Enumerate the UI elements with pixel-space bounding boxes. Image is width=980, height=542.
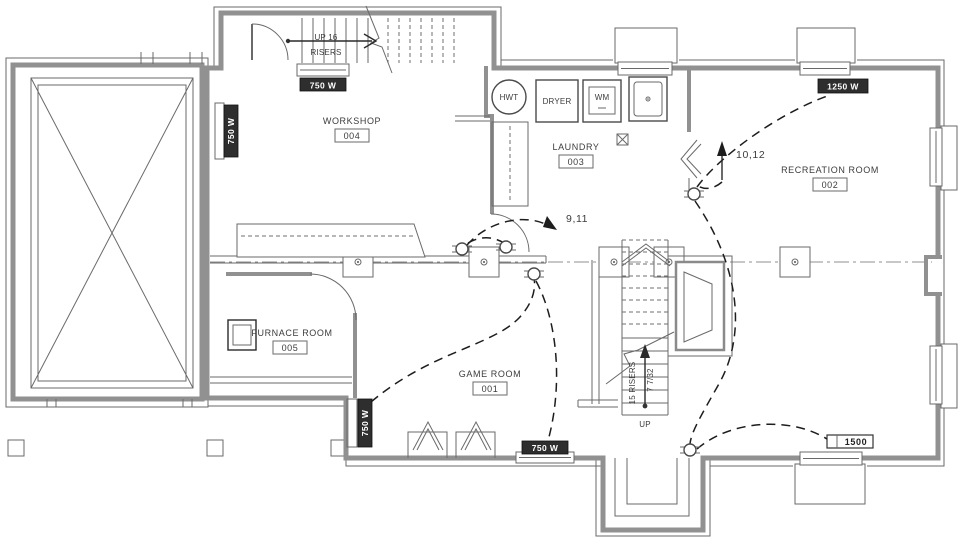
- heater-label: 750 W: [532, 443, 559, 453]
- upper-stairs: [252, 6, 454, 73]
- laundry-sink: [629, 77, 667, 121]
- upper-stairs-label-1: UP 16: [314, 33, 337, 42]
- heater-label: 750 W: [226, 117, 236, 144]
- post-footings: [8, 440, 347, 456]
- window-well: [797, 28, 855, 63]
- basement-floor-plan: HWT DRYER WM: [0, 0, 980, 542]
- main-stairs-riser-height-label: 7 7/32: [646, 368, 655, 392]
- room-name-laundry: LAUNDRY: [552, 142, 599, 152]
- room-number-laundry: 003: [568, 157, 585, 167]
- wm-label: WM: [595, 93, 610, 102]
- door-swing: [310, 274, 356, 320]
- receptacle-symbol: [684, 188, 704, 200]
- circuit-wire: [697, 424, 827, 449]
- heater-label: 1250 W: [827, 82, 859, 92]
- room-number-recreation: 002: [822, 180, 839, 190]
- room-number-furnace: 005: [282, 343, 299, 353]
- washing-machine: WM: [583, 80, 621, 122]
- window-well: [795, 464, 865, 504]
- circuit-wire: [536, 281, 557, 437]
- window-well: [941, 126, 957, 190]
- workbench: [237, 224, 425, 257]
- window-well: [615, 28, 677, 63]
- heater-stair-hall: 750 W: [297, 64, 349, 91]
- room-number-game: 001: [482, 384, 499, 394]
- upper-stairs-label-2: RISERS: [311, 48, 342, 57]
- window: [800, 62, 850, 75]
- heater-game-room-bottom: 750 W: [516, 441, 574, 463]
- heater-label: 750 W: [310, 81, 337, 91]
- floor-drain-symbol: [617, 134, 628, 145]
- dryer-label: DRYER: [543, 97, 572, 106]
- circuit-wire: [468, 238, 504, 243]
- heater-game-room-wall: 750 W: [347, 399, 372, 447]
- hwt-label: HWT: [500, 93, 519, 102]
- heater-workshop-wall: 750 W: [215, 103, 238, 159]
- stair-arrow-start: [643, 404, 648, 409]
- heater-label: 750 W: [360, 409, 370, 436]
- room-number-workshop: 004: [344, 131, 361, 141]
- closet-shelf: [492, 122, 528, 206]
- window-well: [941, 344, 957, 408]
- floor-plan-drawing: HWT DRYER WM: [0, 0, 980, 542]
- basement-window-bays: [408, 422, 495, 458]
- circuit-arrow-head: [543, 216, 557, 230]
- receptacle-outlets: [452, 188, 704, 456]
- circuit-wire: [371, 277, 535, 402]
- circuit-wire: [698, 182, 722, 188]
- heater-recreation-bottom: 1500: [827, 435, 873, 448]
- room-name-recreation: RECREATION ROOM: [781, 165, 879, 175]
- window: [800, 452, 862, 465]
- main-stairs-risers-label: 15 RISERS: [628, 362, 637, 405]
- room-name-workshop: WORKSHOP: [323, 116, 381, 126]
- column-post: [780, 247, 810, 277]
- window: [618, 62, 672, 75]
- main-stairs-direction-label: UP: [639, 420, 651, 429]
- door-swing: [252, 24, 288, 60]
- receptacle-symbol: [524, 268, 544, 280]
- room-name-furnace: FURNACE ROOM: [251, 328, 332, 338]
- heater-label: 1500: [845, 437, 867, 447]
- column-post: [469, 247, 499, 277]
- window: [930, 128, 942, 186]
- window: [930, 346, 942, 404]
- hot-water-tank: HWT: [492, 80, 526, 114]
- dryer: DRYER: [536, 80, 578, 122]
- circuit-arrow-head: [717, 141, 727, 156]
- circuit-label-10-12: 10,12: [736, 149, 765, 161]
- heater-recreation-top: 1250 W: [818, 79, 868, 93]
- circuit-label-9-11: 9,11: [566, 213, 588, 225]
- room-name-game: GAME ROOM: [459, 369, 521, 379]
- fireplace-base: [668, 256, 732, 356]
- receptacle-symbol: [680, 444, 700, 456]
